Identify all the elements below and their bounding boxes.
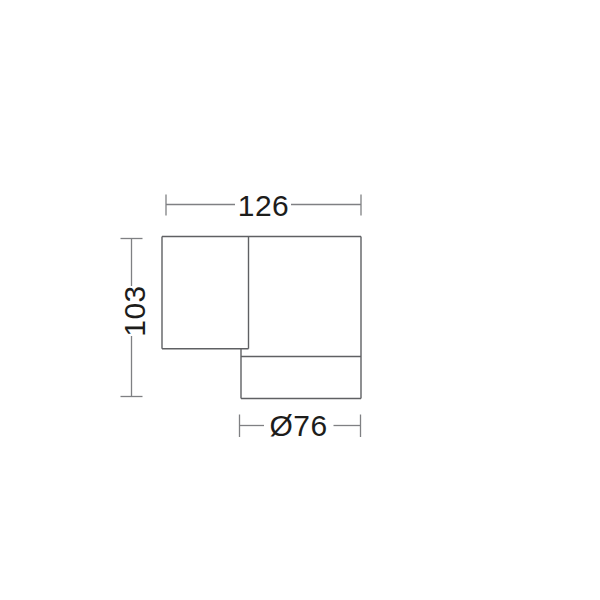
width-dim-label: 126: [238, 189, 290, 222]
dimension-drawing: 126 103 Ø76: [0, 0, 600, 600]
height-dimension: 103: [118, 239, 151, 397]
width-dimension: 126: [166, 189, 361, 222]
height-dim-label: 103: [118, 285, 151, 337]
diameter-dim-label: Ø76: [269, 409, 327, 442]
drawing-canvas: 126 103 Ø76: [0, 0, 600, 600]
diameter-dimension: Ø76: [240, 409, 361, 442]
product-outline: [162, 237, 361, 399]
